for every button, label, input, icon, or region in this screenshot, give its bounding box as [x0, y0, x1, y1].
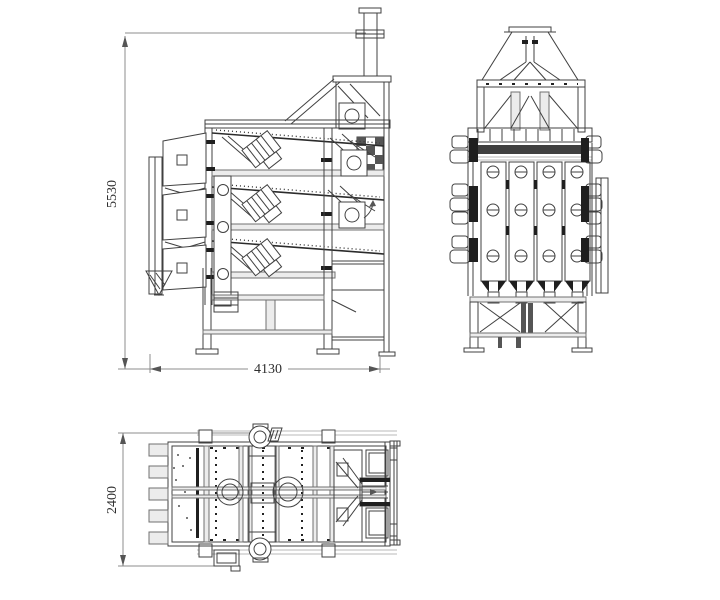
technical-drawing: 5530 4130 2400 [0, 0, 720, 600]
left-hoppers [146, 133, 206, 295]
left-panel [173, 448, 199, 538]
height-dimension-label: 5530 [105, 180, 120, 208]
end-elevation-view [450, 27, 608, 352]
width-dimension-label: 2400 [105, 486, 120, 514]
lower-frame [464, 297, 592, 352]
inlet-hopper [482, 27, 578, 80]
length-dimension: 4130 [118, 354, 390, 377]
length-dimension-label: 4130 [254, 362, 282, 377]
drawing-canvas: 5530 4130 2400 [0, 0, 720, 600]
suspension-column [214, 176, 231, 306]
plan-view [149, 424, 400, 571]
exhaust-pipe [356, 8, 384, 76]
side-elevation-view [146, 8, 395, 356]
outlet-stubs [149, 444, 168, 544]
screen-deck-3 [212, 238, 384, 283]
tube-columns [481, 162, 590, 303]
deck-band [468, 128, 592, 160]
height-dimension: 5530 [105, 33, 366, 369]
upper-frame [477, 80, 585, 132]
plan-right-blocks [360, 441, 400, 545]
